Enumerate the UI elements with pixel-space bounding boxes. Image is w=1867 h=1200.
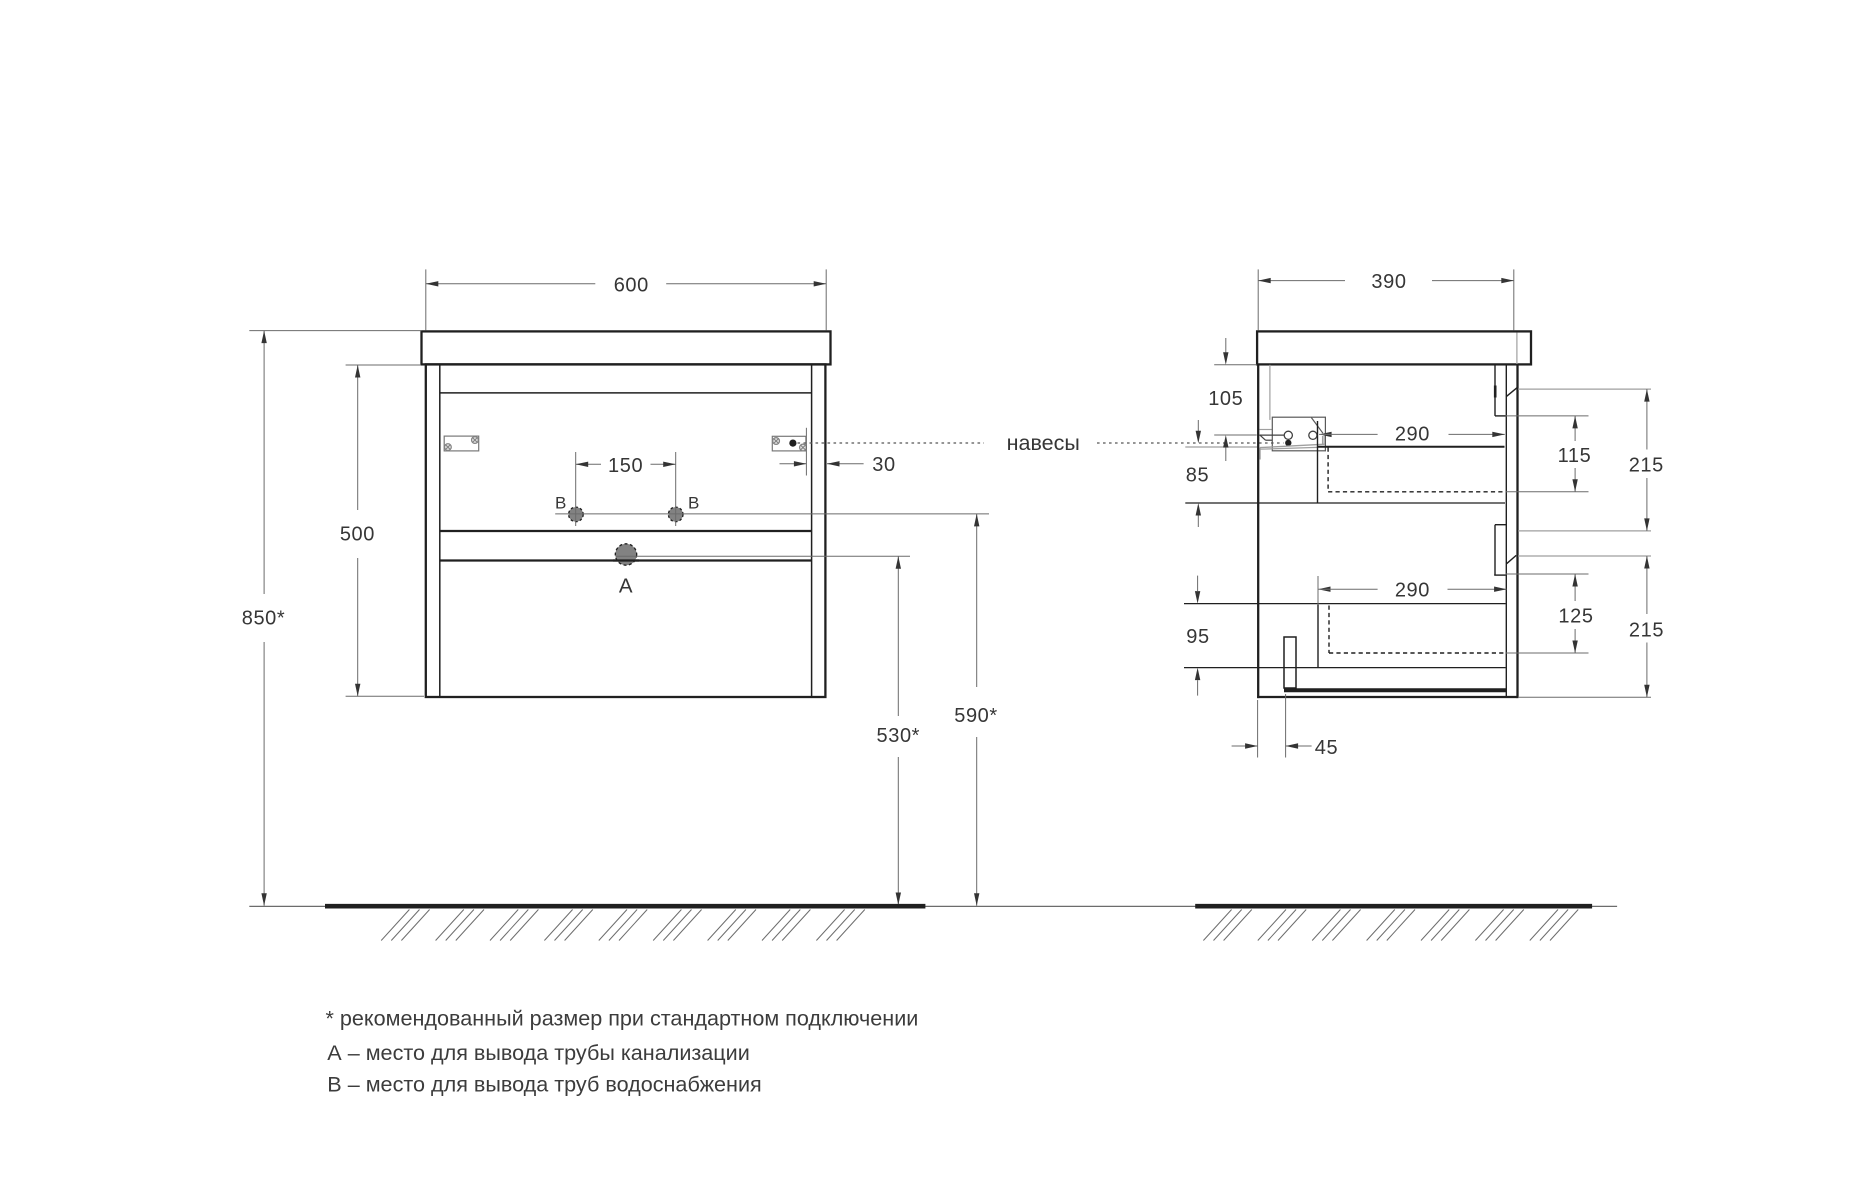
svg-text:600: 600 — [614, 274, 649, 296]
svg-text:В: В — [688, 493, 700, 512]
svg-text:85: 85 — [1186, 465, 1209, 487]
svg-text:390: 390 — [1371, 271, 1406, 293]
svg-text:500: 500 — [340, 524, 375, 546]
svg-text:А: А — [619, 574, 633, 597]
svg-text:* рекомендованный размер при с: * рекомендованный размер при стандартном… — [326, 1006, 919, 1031]
svg-text:В: В — [555, 493, 567, 512]
svg-text:215: 215 — [1629, 620, 1664, 642]
svg-text:115: 115 — [1558, 445, 1592, 467]
svg-text:125: 125 — [1558, 606, 1593, 628]
svg-text:навесы: навесы — [1007, 431, 1080, 455]
svg-text:290: 290 — [1395, 424, 1430, 446]
svg-text:150: 150 — [608, 455, 643, 477]
svg-text:215: 215 — [1629, 455, 1664, 477]
svg-text:45: 45 — [1315, 737, 1338, 759]
svg-text:590*: 590* — [954, 705, 998, 727]
svg-text:А – место для вывода трубы кан: А – место для вывода трубы канализации — [327, 1040, 750, 1065]
svg-text:850*: 850* — [242, 608, 286, 630]
svg-text:30: 30 — [872, 454, 895, 476]
svg-text:530*: 530* — [877, 725, 921, 747]
svg-text:105: 105 — [1208, 388, 1243, 410]
svg-text:95: 95 — [1186, 626, 1209, 648]
svg-text:290: 290 — [1395, 580, 1430, 602]
svg-text:В – место для вывода труб водо: В – место для вывода труб водоснабжения — [327, 1072, 761, 1097]
